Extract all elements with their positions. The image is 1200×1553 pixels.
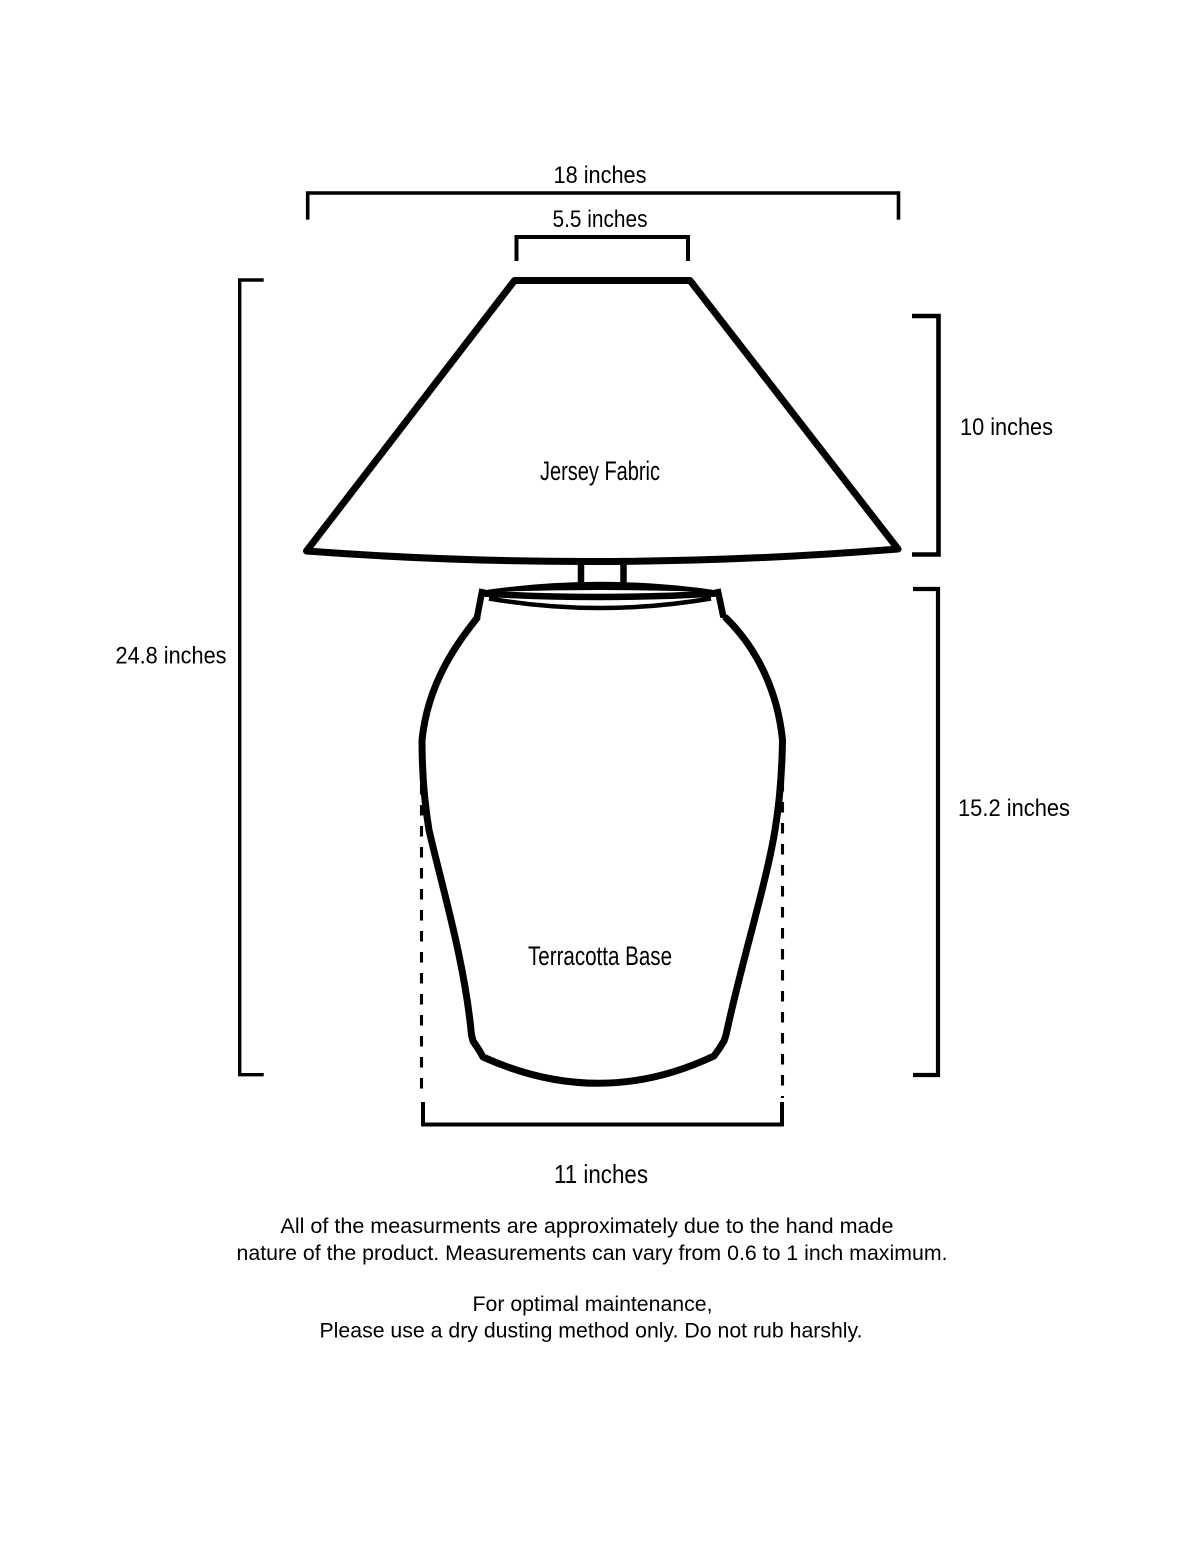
- svg-text:nature of the product. Measure: nature of the product. Measurements can …: [237, 1242, 948, 1265]
- svg-text:15.2 inches: 15.2 inches: [958, 795, 1070, 822]
- svg-text:11 inches: 11 inches: [554, 1159, 648, 1189]
- svg-text:5.5 inches: 5.5 inches: [553, 206, 648, 233]
- svg-text:Jersey Fabric: Jersey Fabric: [540, 456, 660, 486]
- svg-text:Please use a dry dusting metho: Please use a dry dusting method only. Do…: [320, 1320, 863, 1343]
- svg-text:18 inches: 18 inches: [554, 162, 647, 189]
- svg-text:For optimal maintenance,: For optimal maintenance,: [473, 1293, 713, 1316]
- svg-text:10 inches: 10 inches: [960, 414, 1053, 441]
- svg-text:24.8 inches: 24.8 inches: [116, 643, 227, 670]
- svg-text:All of the measurments are app: All of the measurments are approximately…: [281, 1215, 894, 1238]
- svg-text:Terracotta Base: Terracotta Base: [528, 941, 672, 971]
